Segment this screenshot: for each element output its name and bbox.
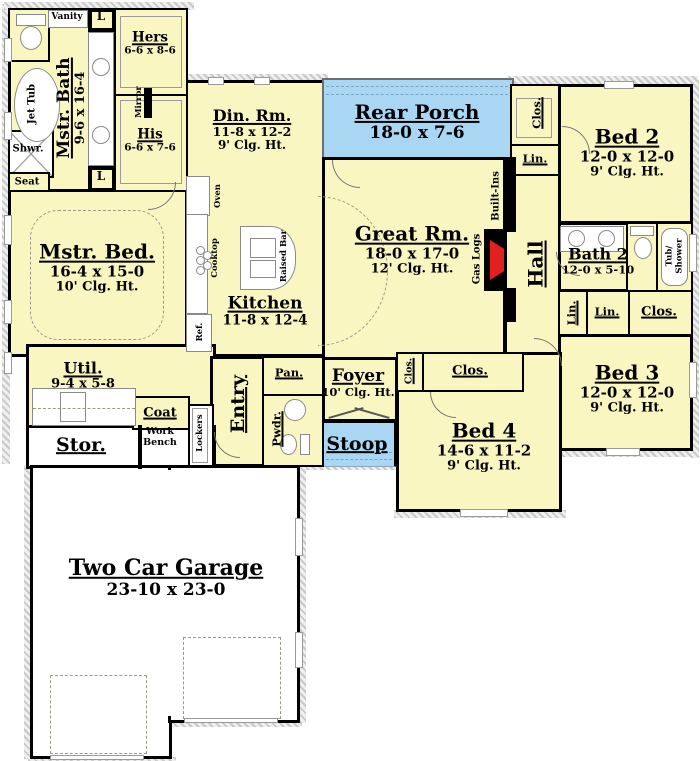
powder-toilet-tank [300, 434, 310, 455]
oven-cabinet [186, 176, 210, 216]
label-bed4: Bed 4 14-6 x 11-2 9' Clg. Ht. [437, 420, 531, 475]
room-ceiling: 9' Clg. Ht. [580, 402, 674, 417]
room-ceiling: 12' Clg. Ht. [355, 263, 469, 278]
room-name: Din. Rm. [213, 107, 292, 125]
room-name: Great Rm. [355, 223, 469, 246]
label-linen-2: Lin. [595, 305, 620, 318]
label-coat: Coat [143, 407, 176, 422]
label-bed3: Bed 3 12-0 x 12-0 9' Clg. Ht. [580, 362, 674, 417]
room-name: Kitchen [222, 295, 307, 314]
room-ceiling: 9' Clg. Ht. [213, 139, 292, 153]
window-bed4-bottom [460, 509, 508, 517]
label-work-bench: Work Bench [136, 427, 184, 449]
label-his: His 6-6 x 7-6 [124, 127, 176, 154]
label-shwr: Shwr. [13, 143, 44, 154]
label-built-ins: Built-Ins [490, 171, 501, 221]
window-bed2-top [604, 81, 634, 89]
toilet-tank-master [16, 14, 46, 26]
room-dims: 11-8 x 12-2 [213, 125, 292, 139]
window-bed3-bottom [606, 448, 640, 456]
garage-door-left [50, 755, 144, 760]
porch-edge-dash-1 [326, 86, 508, 87]
label-mirror: Mirror [135, 86, 145, 118]
label-closet-top-right: Clos. [530, 97, 543, 129]
label-bed2: Bed 2 12-0 x 12-0 9' Clg. Ht. [580, 126, 674, 181]
label-bed4-closet: Clos. [452, 365, 488, 380]
label-hers: Hers 6-6 x 8-6 [124, 30, 176, 57]
window-dining-2 [254, 77, 270, 85]
label-cooktop: Cooktop [211, 238, 221, 278]
label-closet-l-top: L [97, 10, 105, 24]
window-tub [689, 234, 697, 272]
label-stoop: Stoop [326, 434, 387, 456]
window-bed3-right [689, 362, 697, 398]
room-name: Rear Porch [355, 101, 480, 124]
room-name: Bed 2 [580, 126, 674, 149]
util-counter-dashline [33, 408, 135, 409]
label-vanity: Vanity [51, 12, 82, 22]
window-master-bath-1 [4, 38, 12, 62]
garage-door-right [184, 718, 278, 723]
bath2-toilet-bowl [634, 237, 652, 259]
floor-plan: Mstr. Bath 9-6 x 16-4 Vanity L L Hers 6-… [0, 0, 700, 761]
room-name: Mstr. Bed. [39, 241, 155, 264]
room-name: Foyer [321, 367, 394, 386]
island-sink-2 [250, 260, 276, 278]
label-jet-tub: Jet Tub [26, 84, 37, 124]
room-name: Bed 3 [580, 362, 674, 385]
label-raised-bar: Raised Bar [280, 230, 290, 282]
room-dims: 12-0 x 12-0 [580, 148, 674, 165]
toilet-bowl-master [20, 26, 42, 50]
room-name: Stoop [326, 433, 387, 455]
room-dims: 23-10 x 23-0 [69, 581, 264, 600]
label-hall: Hall [525, 240, 548, 287]
room-ceiling: 9' Clg. Ht. [437, 460, 531, 475]
built-ins-wall [504, 157, 516, 232]
island-sink-1 [250, 238, 276, 258]
room-name: Stor. [56, 434, 106, 456]
label-closet-right: Clos. [641, 306, 677, 321]
master-vanity-counter [88, 32, 114, 166]
label-powder: Pwdr. [270, 411, 283, 447]
label-bed4-closet-small: Clos. [405, 358, 416, 384]
label-bath2: Bath 2 12-0 x 5-10 [562, 245, 634, 276]
room-dims: 18-0 x 17-0 [355, 245, 469, 262]
label-gas-logs: Gas Logs [471, 234, 482, 284]
room-name: Entry [227, 375, 249, 433]
room-dims: 16-4 x 15-0 [39, 263, 155, 280]
room-name: His [124, 127, 176, 142]
room-dims: 6-6 x 8-6 [124, 46, 176, 58]
room-dims: 12-0 x 12-0 [580, 384, 674, 401]
label-garage: Two Car Garage 23-10 x 23-0 [69, 556, 264, 600]
label-kitchen: Kitchen 11-8 x 12-4 [222, 295, 307, 330]
label-storage: Stor. [56, 435, 106, 457]
label-linen-top-right: Lin. [523, 152, 548, 165]
exterior-band-top-right [508, 76, 698, 84]
label-master-bath: Mstr. Bath 9-6 x 16-4 [55, 57, 89, 158]
room-ceiling: 9' Clg. Ht. [580, 166, 674, 181]
room-name: Hers [124, 30, 176, 45]
room-ceiling: 10' Clg. Ht. [321, 386, 394, 399]
label-great-room: Great Rm. 18-0 x 17-0 12' Clg. Ht. [355, 223, 469, 278]
room-ceiling: 10' Clg. Ht. [39, 281, 155, 296]
label-rear-porch: Rear Porch 18-0 x 7-6 [355, 101, 480, 143]
room-dims: 9-6 x 16-4 [74, 57, 89, 158]
window-master-bed-2 [4, 300, 12, 324]
label-foyer: Foyer 10' Clg. Ht. [321, 367, 394, 399]
window-master-bath-2 [4, 112, 12, 140]
room-dims: 9-4 x 5-8 [51, 378, 115, 393]
label-pantry: Pan. [275, 366, 303, 379]
label-tub-shower: Tub/ Shower [665, 238, 684, 273]
window-master-bed-1 [4, 215, 12, 245]
master-sink-2 [92, 126, 110, 144]
room-name: Mstr. Bath [55, 57, 74, 158]
room-name: Two Car Garage [69, 556, 264, 581]
porch-edge-dash-2 [326, 94, 508, 95]
master-sink-1 [92, 58, 110, 76]
label-oven: Oven [214, 184, 224, 208]
garage-bay-1 [50, 675, 147, 754]
room-name: Util. [51, 359, 115, 377]
room-dims: 18-0 x 7-6 [355, 124, 480, 143]
label-entry: Entry [228, 375, 250, 433]
label-master-bed: Mstr. Bed. 16-4 x 15-0 10' Clg. Ht. [39, 241, 155, 296]
label-util: Util. 9-4 x 5-8 [51, 359, 115, 392]
room-dims: 6-6 x 7-6 [124, 143, 176, 155]
powder-sink [284, 399, 306, 421]
label-linen-rotated: Lin. [565, 301, 578, 326]
window-util [4, 352, 12, 374]
room-name: Bed 4 [437, 420, 531, 443]
label-dining-room: Din. Rm. 11-8 x 12-2 9' Clg. Ht. [213, 107, 292, 153]
room-dims: 12-0 x 5-10 [562, 264, 634, 277]
label-seat: Seat [15, 176, 40, 187]
label-ref: Ref. [196, 323, 206, 342]
util-sink [60, 392, 86, 422]
garage-bay-2 [183, 637, 281, 719]
stoop-edge-dash-2 [326, 459, 392, 460]
fixture-line-2: Shower [675, 238, 685, 273]
mirror-wall [144, 88, 152, 118]
label-closet-l-bottom: L [97, 170, 105, 184]
exterior-band-garage-right [300, 463, 306, 723]
wall-below-fireplace [504, 288, 516, 322]
room-dims: 14-6 x 11-2 [437, 442, 531, 459]
room-name: Bath 2 [562, 245, 634, 263]
room-dims: 11-8 x 12-4 [222, 314, 307, 329]
window-dining-1 [208, 77, 224, 85]
label-lockers: Lockers [196, 414, 206, 451]
window-garage-right-2 [295, 632, 303, 668]
window-garage-right-1 [295, 518, 303, 556]
bath2-toilet-tank [630, 226, 654, 236]
room-name: Hall [525, 240, 548, 287]
